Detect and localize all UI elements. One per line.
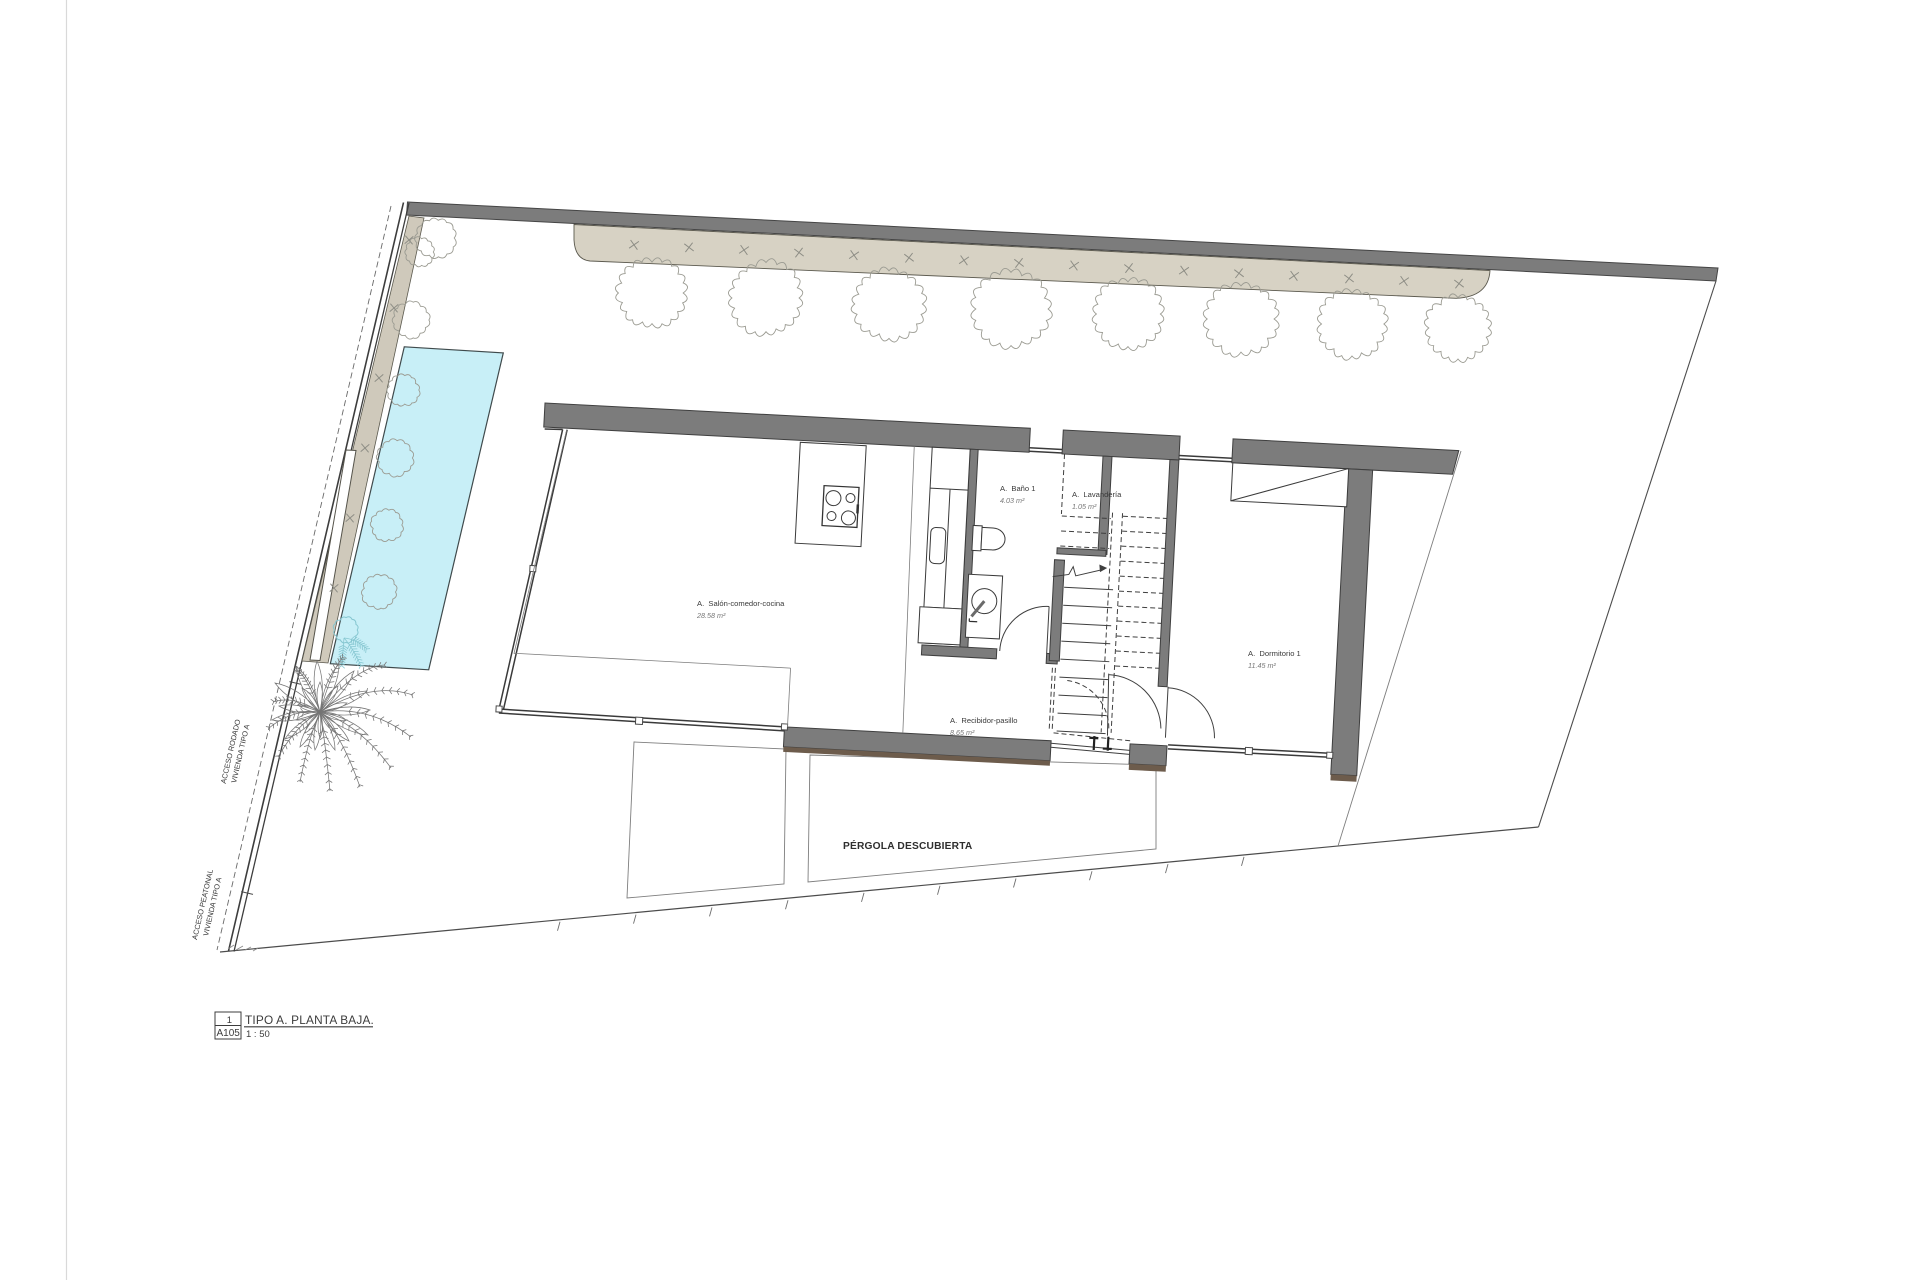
- svg-text:PÉRGOLA DESCUBIERTA: PÉRGOLA DESCUBIERTA: [843, 839, 973, 852]
- svg-text:TIPO A. PLANTA BAJA.: TIPO A. PLANTA BAJA.: [245, 1013, 374, 1027]
- svg-text:28.58 m²: 28.58 m²: [696, 611, 726, 620]
- svg-text:1: 1: [227, 1015, 232, 1026]
- svg-text:1.05 m²: 1.05 m²: [1072, 502, 1097, 511]
- svg-text:1 : 50: 1 : 50: [246, 1029, 270, 1040]
- svg-text:8.65 m²: 8.65 m²: [950, 728, 975, 737]
- svg-text:A105: A105: [217, 1028, 241, 1039]
- svg-text:A. Lavandería: A. Lavandería: [1072, 490, 1122, 499]
- svg-text:A. Dormitorio 1: A. Dormitorio 1: [1248, 649, 1301, 658]
- svg-text:A. Salón-comedor-cocina: A. Salón-comedor-cocina: [697, 599, 785, 608]
- svg-text:4.03 m²: 4.03 m²: [1000, 496, 1025, 505]
- svg-text:11.45 m²: 11.45 m²: [1248, 661, 1276, 670]
- svg-text:A. Baño 1: A. Baño 1: [1000, 484, 1035, 493]
- svg-text:A. Recibidor-pasillo: A. Recibidor-pasillo: [950, 716, 1018, 725]
